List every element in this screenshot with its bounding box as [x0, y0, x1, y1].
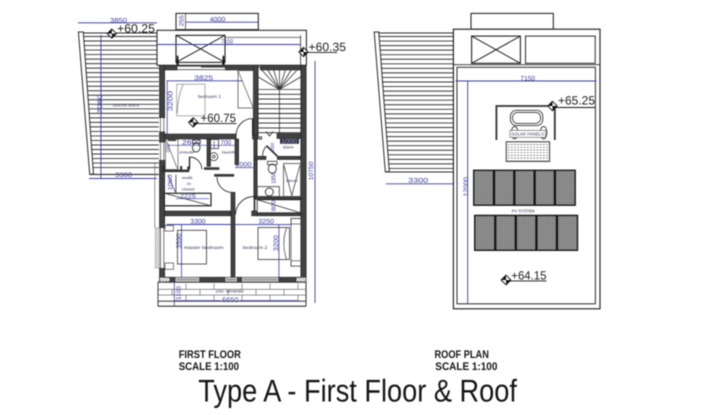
svg-text:1000: 1000	[270, 142, 276, 152]
svg-text:master bedroom: master bedroom	[184, 245, 224, 250]
svg-text:2225: 2225	[180, 194, 196, 200]
svg-text:6650: 6650	[222, 297, 239, 304]
svg-text:bedroom 1: bedroom 1	[198, 94, 222, 99]
svg-text:+60.25: +60.25	[117, 22, 155, 36]
svg-text:1060: 1060	[167, 174, 174, 190]
svg-text:PV SYSTEM: PV SYSTEM	[512, 209, 535, 214]
svg-text:SCALE 1:100: SCALE 1:100	[179, 361, 239, 373]
svg-text:12000: 12000	[463, 177, 470, 197]
svg-text:255: 255	[178, 15, 185, 26]
svg-text:+65.25: +65.25	[558, 94, 595, 108]
svg-text:3590: 3590	[176, 233, 183, 249]
svg-text:walk: walk	[182, 175, 193, 180]
svg-text:FIRST FLOOR: FIRST FLOOR	[179, 349, 241, 361]
svg-text:cov. veranda: cov. veranda	[216, 288, 245, 293]
svg-text:4000: 4000	[210, 17, 226, 24]
svg-text:3250: 3250	[258, 219, 274, 226]
svg-text:SOLAR PANELS: SOLAR PANELS	[511, 132, 544, 137]
svg-text:1850: 1850	[271, 172, 278, 184]
svg-text:3825: 3825	[194, 75, 213, 82]
svg-text:ensuite: ensuite	[180, 149, 195, 154]
svg-text:7080: 7080	[97, 94, 104, 114]
svg-text:in: in	[187, 181, 191, 186]
svg-text:SCALE 1:100: SCALE 1:100	[435, 361, 497, 373]
svg-text:laundry: laundry	[222, 149, 238, 154]
svg-text:bedroom 2: bedroom 2	[243, 245, 268, 250]
svg-text:3300: 3300	[190, 219, 206, 226]
svg-text:7150: 7150	[520, 75, 535, 82]
svg-text:3200: 3200	[273, 235, 280, 252]
svg-text:700: 700	[221, 140, 232, 147]
svg-text:1100: 1100	[176, 285, 183, 300]
svg-text:7150: 7150	[221, 38, 233, 45]
svg-text:concrete beams: concrete beams	[113, 103, 140, 108]
svg-text:3300: 3300	[408, 177, 428, 184]
svg-text:closet: closet	[182, 186, 196, 191]
svg-text:ROOF PLAN: ROOF PLAN	[435, 349, 489, 361]
svg-text:store: store	[283, 144, 295, 149]
svg-text:3200: 3200	[167, 90, 174, 111]
svg-text:+60.75: +60.75	[201, 111, 237, 125]
svg-text:10750: 10750	[308, 161, 315, 180]
svg-text:3300: 3300	[115, 172, 132, 179]
svg-text:Type A - First Floor & Roof: Type A - First Floor & Roof	[198, 372, 517, 408]
